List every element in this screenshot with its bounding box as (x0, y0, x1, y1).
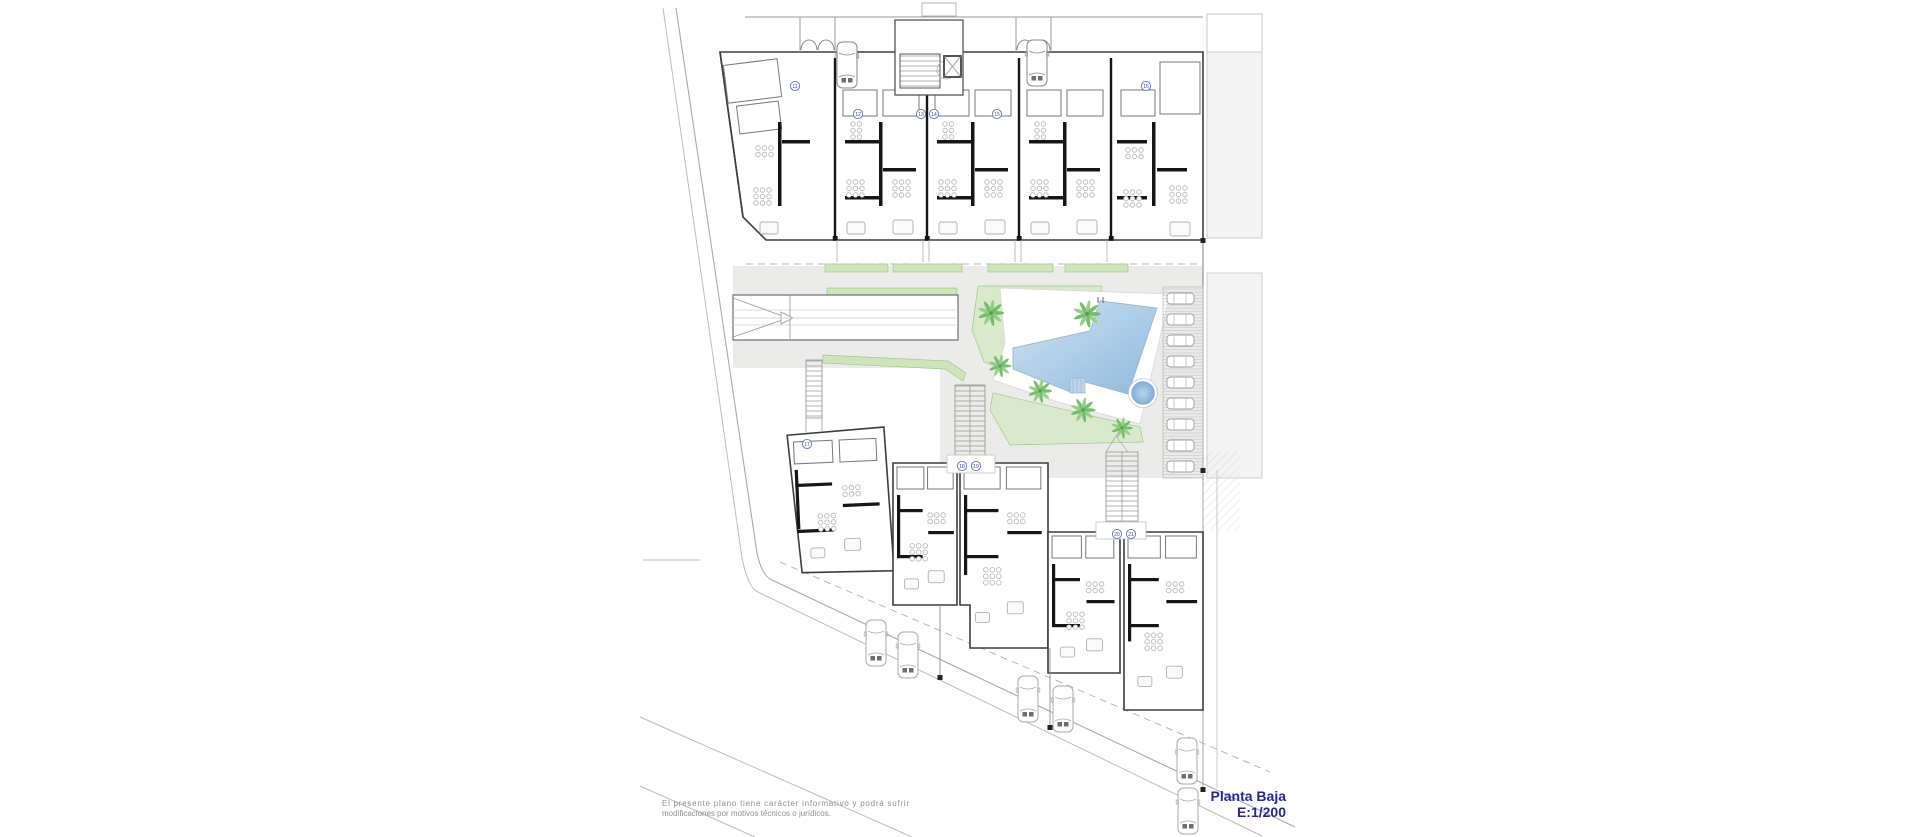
car-top-view-icon (1167, 461, 1194, 472)
car-top-view-icon (1176, 788, 1200, 834)
parking-bay-cars (1167, 293, 1194, 472)
svg-text:20: 20 (1114, 532, 1120, 538)
car-top-view-icon (1167, 293, 1194, 304)
svg-text:13: 13 (918, 112, 924, 118)
svg-text:11: 11 (792, 84, 797, 90)
disclaimer: El presente plano tiene carácter informa… (662, 799, 909, 818)
unit-number-marker: 21 (1126, 529, 1135, 538)
svg-text:12: 12 (855, 112, 861, 118)
disclaimer-line-2: modificaciones por motivos técnicos o ju… (662, 809, 831, 818)
unit-number-marker: 18 (957, 461, 966, 470)
unit-number-marker: 12 (853, 109, 862, 118)
car-top-view-icon (1167, 314, 1194, 325)
building-cluster-southeast (1048, 532, 1203, 710)
unit-number-marker: 19 (971, 461, 980, 470)
green-strip (825, 264, 888, 272)
car-top-view-icon (1167, 356, 1194, 367)
garage-ramp (733, 295, 958, 340)
car-top-view-icon (1167, 377, 1194, 388)
pool-steps (1070, 378, 1085, 393)
title-block: Planta Baja E:1/200 (1211, 788, 1287, 820)
green-strip (893, 264, 962, 272)
car-top-view-icon (1025, 40, 1049, 86)
floor-plan-canvas: 1112131415161718192021 Planta Baja E:1/2… (0, 0, 1920, 837)
scale-label: E:1/200 (1237, 804, 1286, 820)
svg-text:14: 14 (931, 112, 937, 118)
green-strip (988, 264, 1053, 272)
unit-number-marker: 17 (802, 439, 811, 448)
svg-text:16: 16 (1143, 84, 1149, 90)
green-strip (1065, 264, 1128, 272)
car-top-view-icon (864, 620, 888, 666)
car-top-view-icon (1167, 440, 1194, 451)
svg-text:21: 21 (1128, 532, 1134, 538)
svg-text:15: 15 (994, 112, 1000, 118)
svg-text:19: 19 (973, 464, 979, 470)
floor-title: Planta Baja (1211, 788, 1287, 804)
spa-pool (1130, 380, 1156, 406)
car-top-view-icon (1167, 398, 1194, 409)
disclaimer-line-1: El presente plano tiene carácter informa… (662, 799, 909, 808)
car-top-view-icon (896, 632, 920, 678)
unit-number-marker: 13 (916, 109, 925, 118)
car-top-view-icon (1016, 676, 1040, 722)
building-row-north (720, 3, 1203, 262)
unit-number-marker: 20 (1112, 529, 1121, 538)
car-top-view-icon (1167, 419, 1194, 430)
svg-text:17: 17 (804, 442, 810, 448)
unit-number-marker: 15 (992, 109, 1001, 118)
neighbor-buildings (1207, 14, 1262, 478)
car-top-view-icon (1175, 738, 1199, 784)
car-top-view-icon (1051, 686, 1075, 732)
car-top-view-icon (835, 42, 859, 88)
svg-text:18: 18 (959, 464, 965, 470)
unit-number-marker: 14 (929, 109, 938, 118)
driveway-1 (800, 17, 835, 52)
car-top-view-icon (1167, 335, 1194, 346)
unit-number-marker: 11 (790, 81, 799, 90)
unit-number-marker: 16 (1141, 81, 1150, 90)
